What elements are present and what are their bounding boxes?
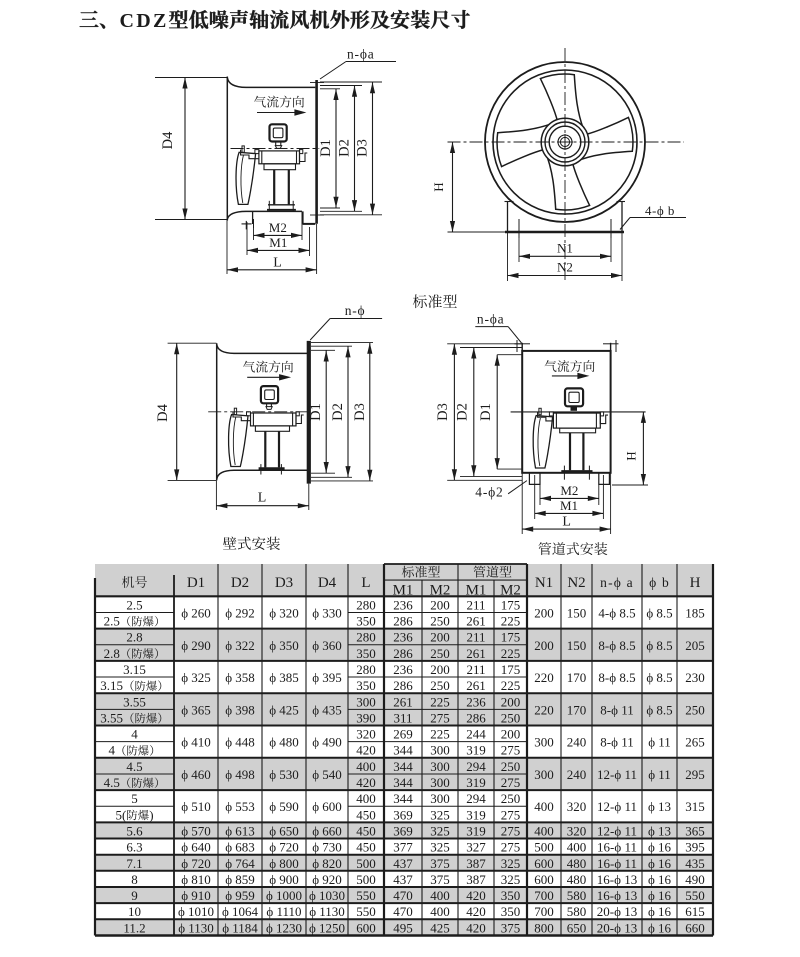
svg-text:ϕ 683: ϕ 683 bbox=[225, 840, 255, 855]
svg-text:435: 435 bbox=[685, 856, 705, 871]
svg-text:311: 311 bbox=[393, 710, 412, 725]
svg-text:175: 175 bbox=[501, 630, 521, 645]
svg-text:170: 170 bbox=[567, 702, 587, 717]
svg-text:8-ϕ 8.5: 8-ϕ 8.5 bbox=[598, 670, 635, 685]
svg-text:319: 319 bbox=[466, 824, 486, 839]
svg-text:D2: D2 bbox=[455, 403, 471, 421]
svg-text:420: 420 bbox=[466, 904, 486, 919]
svg-text:M2: M2 bbox=[500, 582, 521, 598]
svg-text:420: 420 bbox=[466, 888, 486, 903]
svg-text:261: 261 bbox=[466, 646, 486, 661]
svg-text:ϕ 13: ϕ 13 bbox=[648, 799, 671, 814]
svg-text:ϕ 1230: ϕ 1230 bbox=[266, 920, 302, 935]
svg-text:4: 4 bbox=[131, 727, 138, 742]
svg-text:275: 275 bbox=[501, 775, 521, 790]
svg-text:220: 220 bbox=[534, 670, 554, 685]
svg-text:500: 500 bbox=[534, 840, 554, 855]
svg-text:N1: N1 bbox=[557, 241, 573, 256]
svg-text:n-ϕa: n-ϕa bbox=[477, 312, 505, 327]
svg-text:286: 286 bbox=[466, 710, 486, 725]
svg-text:550: 550 bbox=[356, 904, 376, 919]
svg-text:600: 600 bbox=[534, 856, 554, 871]
svg-text:ϕ 910: ϕ 910 bbox=[181, 888, 211, 903]
svg-text:400: 400 bbox=[356, 759, 376, 774]
svg-text:ϕ 435: ϕ 435 bbox=[312, 702, 342, 717]
svg-text:261: 261 bbox=[466, 678, 486, 693]
svg-text:300: 300 bbox=[534, 735, 554, 750]
svg-text:325: 325 bbox=[501, 856, 521, 871]
svg-text:ϕ 900: ϕ 900 bbox=[269, 872, 299, 887]
svg-text:ϕ 330: ϕ 330 bbox=[312, 605, 342, 620]
svg-text:350: 350 bbox=[356, 678, 376, 693]
svg-text:3.15: 3.15 bbox=[100, 678, 123, 693]
svg-text:365: 365 bbox=[685, 824, 705, 839]
svg-text:D2: D2 bbox=[330, 403, 346, 421]
svg-text:ϕ 613: ϕ 613 bbox=[225, 824, 255, 839]
svg-text:250: 250 bbox=[501, 791, 521, 806]
svg-text:400: 400 bbox=[534, 799, 554, 814]
svg-text:ϕ 480: ϕ 480 bbox=[269, 735, 299, 750]
svg-text:420: 420 bbox=[356, 775, 376, 790]
svg-text:M2: M2 bbox=[560, 483, 578, 498]
svg-text:375: 375 bbox=[501, 920, 521, 935]
svg-text:236: 236 bbox=[393, 597, 413, 612]
svg-text:D3: D3 bbox=[275, 575, 293, 591]
svg-text:L: L bbox=[361, 575, 370, 591]
svg-text:580: 580 bbox=[567, 904, 587, 919]
svg-text:369: 369 bbox=[393, 824, 413, 839]
svg-text:4-ϕ b: 4-ϕ b bbox=[645, 203, 675, 218]
svg-text:ϕ 720: ϕ 720 bbox=[181, 856, 211, 871]
svg-text:ϕ 640: ϕ 640 bbox=[181, 840, 211, 855]
svg-text:220: 220 bbox=[534, 702, 554, 717]
svg-text:325: 325 bbox=[430, 824, 450, 839]
svg-text:11.2: 11.2 bbox=[123, 920, 145, 935]
svg-text:320: 320 bbox=[567, 824, 587, 839]
svg-text:300: 300 bbox=[430, 759, 450, 774]
svg-text:ϕ 1064: ϕ 1064 bbox=[222, 904, 259, 919]
svg-text:16-ϕ 11: 16-ϕ 11 bbox=[597, 856, 637, 871]
svg-text:319: 319 bbox=[466, 807, 486, 822]
svg-text:H: H bbox=[431, 182, 446, 191]
svg-text:350: 350 bbox=[501, 888, 521, 903]
svg-text:M1: M1 bbox=[560, 498, 578, 513]
svg-text:500: 500 bbox=[356, 872, 376, 887]
svg-text:8: 8 bbox=[131, 872, 138, 887]
svg-text:230: 230 bbox=[685, 670, 705, 685]
svg-text:ϕ 553: ϕ 553 bbox=[225, 799, 255, 814]
svg-text:ϕ 764: ϕ 764 bbox=[225, 856, 255, 871]
svg-text:ϕ 540: ϕ 540 bbox=[312, 767, 342, 782]
svg-text:ϕ 530: ϕ 530 bbox=[269, 767, 299, 782]
svg-text:400: 400 bbox=[356, 791, 376, 806]
svg-text:3.55: 3.55 bbox=[100, 710, 123, 725]
svg-text:200: 200 bbox=[430, 662, 450, 677]
svg-text:211: 211 bbox=[466, 662, 485, 677]
svg-text:437: 437 bbox=[393, 872, 413, 887]
svg-text:200: 200 bbox=[501, 694, 521, 709]
svg-text:205: 205 bbox=[685, 638, 705, 653]
svg-text:700: 700 bbox=[534, 888, 554, 903]
svg-text:236: 236 bbox=[393, 630, 413, 645]
svg-text:470: 470 bbox=[393, 904, 413, 919]
svg-text:2.5: 2.5 bbox=[104, 614, 120, 629]
svg-text:n-ϕ: n-ϕ bbox=[345, 303, 366, 318]
svg-text:325: 325 bbox=[501, 872, 521, 887]
svg-text:300: 300 bbox=[534, 767, 554, 782]
svg-text:12-ϕ 11: 12-ϕ 11 bbox=[597, 767, 637, 782]
svg-text:5(: 5( bbox=[116, 807, 127, 822]
svg-text:200: 200 bbox=[501, 727, 521, 742]
svg-text:ϕ 360: ϕ 360 bbox=[312, 638, 342, 653]
svg-text:650: 650 bbox=[567, 920, 587, 935]
svg-text:387: 387 bbox=[466, 872, 486, 887]
svg-text:ϕ 16: ϕ 16 bbox=[648, 856, 672, 871]
svg-text:D3: D3 bbox=[435, 403, 451, 421]
svg-text:480: 480 bbox=[567, 856, 587, 871]
svg-text:350: 350 bbox=[356, 646, 376, 661]
svg-text:M1: M1 bbox=[466, 582, 487, 598]
svg-text:4.5: 4.5 bbox=[104, 775, 120, 790]
svg-text:275: 275 bbox=[430, 710, 450, 725]
svg-text:ϕ 600: ϕ 600 bbox=[312, 799, 342, 814]
svg-text:236: 236 bbox=[466, 694, 486, 709]
svg-text:ϕ 290: ϕ 290 bbox=[181, 638, 211, 653]
svg-text:400: 400 bbox=[430, 888, 450, 903]
svg-text:D1: D1 bbox=[318, 139, 334, 157]
svg-text:8-ϕ 11: 8-ϕ 11 bbox=[600, 702, 633, 717]
svg-text:16-ϕ 13: 16-ϕ 13 bbox=[597, 872, 637, 887]
svg-text:ϕ 800: ϕ 800 bbox=[269, 856, 299, 871]
svg-text:344: 344 bbox=[393, 775, 413, 790]
svg-text:ϕ 322: ϕ 322 bbox=[225, 638, 255, 653]
svg-text:L: L bbox=[273, 255, 282, 270]
svg-text:7.1: 7.1 bbox=[126, 856, 142, 871]
svg-text:580: 580 bbox=[567, 888, 587, 903]
svg-text:286: 286 bbox=[393, 614, 413, 629]
svg-text:ϕ 1184: ϕ 1184 bbox=[222, 920, 258, 935]
svg-text:369: 369 bbox=[393, 807, 413, 822]
svg-text:400: 400 bbox=[430, 904, 450, 919]
svg-text:9: 9 bbox=[131, 888, 138, 903]
svg-text:295: 295 bbox=[685, 767, 705, 782]
svg-text:420: 420 bbox=[466, 920, 486, 935]
svg-text:M1: M1 bbox=[269, 235, 287, 250]
svg-text:D3: D3 bbox=[352, 403, 368, 421]
svg-text:16-ϕ 13: 16-ϕ 13 bbox=[597, 888, 637, 903]
svg-text:225: 225 bbox=[501, 678, 521, 693]
svg-text:ϕ 260: ϕ 260 bbox=[181, 605, 211, 620]
svg-text:375: 375 bbox=[430, 856, 450, 871]
svg-text:ϕ 320: ϕ 320 bbox=[269, 605, 299, 620]
svg-text:20-ϕ 13: 20-ϕ 13 bbox=[597, 920, 637, 935]
svg-text:ϕ 460: ϕ 460 bbox=[181, 767, 211, 782]
svg-text:ϕ 650: ϕ 650 bbox=[269, 824, 299, 839]
svg-text:ϕ b: ϕ b bbox=[649, 575, 670, 590]
svg-text:ϕ 425: ϕ 425 bbox=[269, 702, 299, 717]
svg-text:ϕ 1110: ϕ 1110 bbox=[266, 904, 301, 919]
svg-text:ϕ 358: ϕ 358 bbox=[225, 670, 255, 685]
svg-text:375: 375 bbox=[430, 872, 450, 887]
svg-text:344: 344 bbox=[393, 759, 413, 774]
svg-text:D4: D4 bbox=[318, 575, 337, 591]
svg-text:211: 211 bbox=[466, 630, 485, 645]
svg-text:ϕ 16: ϕ 16 bbox=[648, 840, 672, 855]
svg-text:269: 269 bbox=[393, 727, 413, 742]
svg-text:H: H bbox=[690, 575, 701, 591]
svg-text:344: 344 bbox=[393, 791, 413, 806]
svg-text:450: 450 bbox=[356, 824, 376, 839]
svg-text:ϕ 398: ϕ 398 bbox=[225, 702, 255, 717]
svg-text:ϕ 11: ϕ 11 bbox=[648, 735, 671, 750]
svg-text:ϕ 13: ϕ 13 bbox=[648, 824, 671, 839]
svg-text:10: 10 bbox=[128, 904, 141, 919]
svg-text:M2: M2 bbox=[269, 220, 287, 235]
svg-text:ϕ 1130: ϕ 1130 bbox=[309, 904, 345, 919]
svg-text:250: 250 bbox=[685, 702, 705, 717]
svg-text:ϕ 410: ϕ 410 bbox=[181, 735, 211, 750]
svg-text:350: 350 bbox=[501, 904, 521, 919]
svg-text:200: 200 bbox=[430, 630, 450, 645]
svg-text:550: 550 bbox=[356, 888, 376, 903]
svg-text:ϕ 292: ϕ 292 bbox=[225, 605, 255, 620]
svg-text:261: 261 bbox=[393, 694, 413, 709]
svg-text:ϕ 395: ϕ 395 bbox=[312, 670, 342, 685]
svg-text:236: 236 bbox=[393, 662, 413, 677]
svg-text:ϕ 448: ϕ 448 bbox=[225, 735, 255, 750]
svg-text:250: 250 bbox=[501, 759, 521, 774]
svg-text:12-ϕ 11: 12-ϕ 11 bbox=[597, 824, 637, 839]
svg-text:660: 660 bbox=[685, 920, 705, 935]
svg-text:ϕ 8.5: ϕ 8.5 bbox=[646, 638, 672, 653]
svg-text:225: 225 bbox=[501, 614, 521, 629]
svg-text:250: 250 bbox=[501, 710, 521, 725]
svg-text:325: 325 bbox=[430, 807, 450, 822]
svg-text:240: 240 bbox=[567, 735, 587, 750]
svg-text:ϕ 1250: ϕ 1250 bbox=[309, 920, 345, 935]
svg-text:M1: M1 bbox=[393, 582, 414, 598]
svg-text:300: 300 bbox=[430, 775, 450, 790]
svg-text:600: 600 bbox=[356, 920, 376, 935]
svg-text:4-ϕ 8.5: 4-ϕ 8.5 bbox=[598, 605, 635, 620]
svg-text:3.15: 3.15 bbox=[123, 662, 146, 677]
svg-text:170: 170 bbox=[567, 670, 587, 685]
svg-text:700: 700 bbox=[534, 904, 554, 919]
svg-text:8-ϕ 11: 8-ϕ 11 bbox=[600, 735, 633, 750]
svg-text:ϕ 385: ϕ 385 bbox=[269, 670, 299, 685]
svg-text:275: 275 bbox=[501, 824, 521, 839]
svg-text:150: 150 bbox=[567, 638, 587, 653]
svg-text:2.5: 2.5 bbox=[126, 597, 142, 612]
svg-text:275: 275 bbox=[501, 807, 521, 822]
svg-text:250: 250 bbox=[430, 678, 450, 693]
svg-text:ϕ 1000: ϕ 1000 bbox=[266, 888, 302, 903]
svg-text:200: 200 bbox=[430, 597, 450, 612]
svg-text:280: 280 bbox=[356, 597, 376, 612]
svg-text:495: 495 bbox=[393, 920, 413, 935]
svg-text:ϕ 810: ϕ 810 bbox=[181, 872, 211, 887]
svg-text:280: 280 bbox=[356, 662, 376, 677]
svg-text:ϕ 570: ϕ 570 bbox=[181, 824, 211, 839]
svg-text:294: 294 bbox=[466, 791, 486, 806]
svg-text:300: 300 bbox=[430, 791, 450, 806]
svg-text:L: L bbox=[562, 515, 571, 530]
svg-text:200: 200 bbox=[534, 605, 554, 620]
svg-text:200: 200 bbox=[534, 638, 554, 653]
svg-text:ϕ 920: ϕ 920 bbox=[312, 872, 342, 887]
svg-text:275: 275 bbox=[501, 840, 521, 855]
svg-text:ϕ 510: ϕ 510 bbox=[181, 799, 211, 814]
svg-text:5: 5 bbox=[131, 791, 138, 806]
svg-text:ϕ 325: ϕ 325 bbox=[181, 670, 211, 685]
svg-text:ϕ 16: ϕ 16 bbox=[648, 904, 672, 919]
svg-text:ϕ 16: ϕ 16 bbox=[648, 888, 672, 903]
svg-text:600: 600 bbox=[534, 872, 554, 887]
svg-text:300: 300 bbox=[356, 694, 376, 709]
svg-text:ϕ 720: ϕ 720 bbox=[269, 840, 299, 855]
svg-text:800: 800 bbox=[534, 920, 554, 935]
svg-text:n-ϕ a: n-ϕ a bbox=[600, 575, 634, 590]
svg-text:ϕ 859: ϕ 859 bbox=[225, 872, 255, 887]
svg-text:344: 344 bbox=[393, 743, 413, 758]
svg-text:325: 325 bbox=[430, 840, 450, 855]
svg-text:N1: N1 bbox=[535, 575, 553, 591]
svg-text:327: 327 bbox=[466, 840, 486, 855]
svg-text:250: 250 bbox=[430, 646, 450, 661]
svg-text:320: 320 bbox=[567, 799, 587, 814]
svg-text:ϕ 365: ϕ 365 bbox=[181, 702, 211, 717]
svg-text:261: 261 bbox=[466, 614, 486, 629]
svg-text:D3: D3 bbox=[354, 139, 370, 157]
svg-text:ϕ 660: ϕ 660 bbox=[312, 824, 342, 839]
svg-text:244: 244 bbox=[466, 727, 486, 742]
svg-text:425: 425 bbox=[430, 920, 450, 935]
svg-text:550: 550 bbox=[685, 888, 705, 903]
svg-text:ϕ 16: ϕ 16 bbox=[648, 872, 672, 887]
svg-text:): ) bbox=[149, 807, 153, 822]
svg-text:4: 4 bbox=[109, 743, 116, 758]
svg-text:H: H bbox=[624, 451, 639, 460]
svg-text:500: 500 bbox=[356, 856, 376, 871]
svg-text:240: 240 bbox=[567, 767, 587, 782]
svg-text:300: 300 bbox=[430, 743, 450, 758]
svg-text:294: 294 bbox=[466, 759, 486, 774]
svg-text:ϕ 1030: ϕ 1030 bbox=[309, 888, 345, 903]
svg-text:L: L bbox=[258, 491, 267, 506]
svg-text:175: 175 bbox=[501, 597, 521, 612]
svg-text:ϕ 820: ϕ 820 bbox=[312, 856, 342, 871]
svg-text:175: 175 bbox=[501, 662, 521, 677]
svg-text:265: 265 bbox=[685, 735, 705, 750]
svg-text:3.55: 3.55 bbox=[123, 694, 146, 709]
svg-text:615: 615 bbox=[685, 904, 705, 919]
svg-text:n-ϕa: n-ϕa bbox=[347, 47, 375, 62]
svg-text:ϕ 590: ϕ 590 bbox=[269, 799, 299, 814]
svg-text:D4: D4 bbox=[155, 403, 171, 421]
svg-text:319: 319 bbox=[466, 775, 486, 790]
svg-text:400: 400 bbox=[567, 840, 587, 855]
svg-text:D2: D2 bbox=[231, 575, 249, 591]
svg-text:480: 480 bbox=[567, 872, 587, 887]
svg-text:211: 211 bbox=[466, 597, 485, 612]
svg-text:ϕ 498: ϕ 498 bbox=[225, 767, 255, 782]
svg-text:5.6: 5.6 bbox=[126, 824, 143, 839]
svg-text:450: 450 bbox=[356, 840, 376, 855]
svg-text:N2: N2 bbox=[557, 260, 573, 275]
svg-text:150: 150 bbox=[567, 605, 587, 620]
svg-text:ϕ 1010: ϕ 1010 bbox=[178, 904, 214, 919]
svg-text:2.8: 2.8 bbox=[104, 646, 120, 661]
svg-text:470: 470 bbox=[393, 888, 413, 903]
svg-text:2.8: 2.8 bbox=[126, 630, 142, 645]
svg-text:ϕ 8.5: ϕ 8.5 bbox=[646, 702, 672, 717]
svg-text:ϕ 730: ϕ 730 bbox=[312, 840, 342, 855]
svg-text:D1: D1 bbox=[187, 575, 205, 591]
svg-text:ϕ 1130: ϕ 1130 bbox=[178, 920, 214, 935]
svg-text:185: 185 bbox=[685, 605, 705, 620]
svg-text:CDZ: CDZ bbox=[120, 10, 169, 32]
svg-text:225: 225 bbox=[501, 646, 521, 661]
svg-text:320: 320 bbox=[356, 727, 376, 742]
svg-text:250: 250 bbox=[430, 614, 450, 629]
svg-text:D1: D1 bbox=[478, 403, 494, 421]
svg-text:400: 400 bbox=[534, 824, 554, 839]
svg-text:387: 387 bbox=[466, 856, 486, 871]
svg-text:ϕ 350: ϕ 350 bbox=[269, 638, 299, 653]
svg-text:286: 286 bbox=[393, 678, 413, 693]
svg-text:D1: D1 bbox=[308, 403, 324, 421]
svg-text:ϕ 16: ϕ 16 bbox=[648, 920, 672, 935]
svg-text:D2: D2 bbox=[336, 139, 352, 157]
svg-text:12-ϕ 11: 12-ϕ 11 bbox=[597, 799, 637, 814]
svg-text:6.3: 6.3 bbox=[126, 840, 142, 855]
svg-text:M2: M2 bbox=[430, 582, 451, 598]
svg-text:ϕ 959: ϕ 959 bbox=[225, 888, 255, 903]
svg-text:450: 450 bbox=[356, 807, 376, 822]
svg-text:ϕ 8.5: ϕ 8.5 bbox=[646, 605, 672, 620]
svg-text:8-ϕ 8.5: 8-ϕ 8.5 bbox=[598, 638, 635, 653]
svg-text:D4: D4 bbox=[160, 131, 176, 149]
svg-text:315: 315 bbox=[685, 799, 705, 814]
svg-text:16-ϕ 11: 16-ϕ 11 bbox=[597, 840, 637, 855]
svg-text:ϕ 8.5: ϕ 8.5 bbox=[646, 670, 672, 685]
svg-text:286: 286 bbox=[393, 646, 413, 661]
svg-text:225: 225 bbox=[430, 727, 450, 742]
svg-text:4.5: 4.5 bbox=[126, 759, 142, 774]
svg-text:390: 390 bbox=[356, 710, 376, 725]
svg-text:280: 280 bbox=[356, 630, 376, 645]
svg-text:420: 420 bbox=[356, 743, 376, 758]
svg-text:275: 275 bbox=[501, 743, 521, 758]
svg-text:395: 395 bbox=[685, 840, 705, 855]
svg-text:N2: N2 bbox=[567, 575, 585, 591]
svg-text:490: 490 bbox=[685, 872, 705, 887]
svg-text:ϕ 490: ϕ 490 bbox=[312, 735, 342, 750]
svg-text:20-ϕ 13: 20-ϕ 13 bbox=[597, 904, 637, 919]
svg-text:ϕ 11: ϕ 11 bbox=[648, 767, 671, 782]
svg-text:437: 437 bbox=[393, 856, 413, 871]
svg-text:4-ϕ2: 4-ϕ2 bbox=[475, 485, 503, 500]
svg-text:377: 377 bbox=[393, 840, 413, 855]
svg-text:225: 225 bbox=[430, 694, 450, 709]
svg-text:350: 350 bbox=[356, 614, 376, 629]
svg-text:319: 319 bbox=[466, 743, 486, 758]
